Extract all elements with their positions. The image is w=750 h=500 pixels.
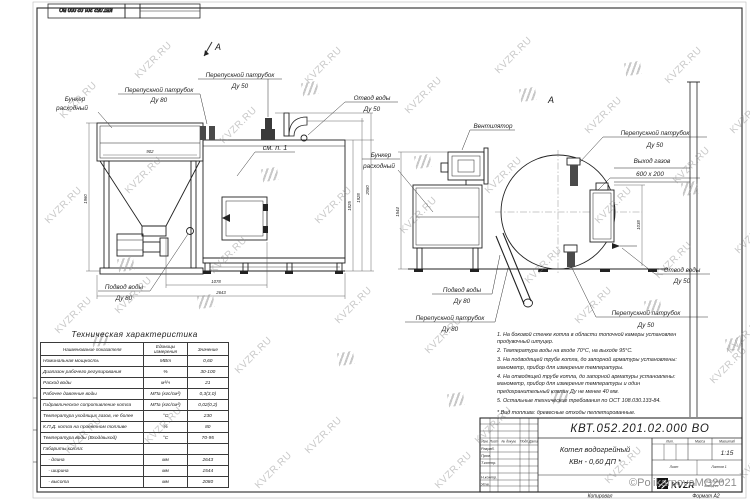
col-header-dokum: № докум. (502, 440, 517, 444)
spec-cell (187, 444, 228, 455)
row-label-tkontr: Т.контр. (481, 461, 496, 465)
note-item: 1. На боковой стенке котла в области топ… (497, 332, 690, 347)
watermark-hatch (301, 81, 319, 97)
product-name-line1: Котел водогрейный (560, 445, 630, 454)
spec-header-name: Наименование показателя (41, 343, 144, 356)
row-label-nkontr: Н.контр. (481, 476, 497, 480)
copyright-watermark: ©PolikarpovaMG2021 (629, 477, 737, 489)
scale-value: 1:15 (721, 450, 734, 457)
side-label-bunker-2: расходный (362, 162, 395, 170)
watermark-hatch (519, 87, 537, 103)
note-item: 2. Температура воды на входе 70°С, на вы… (497, 348, 690, 355)
spec-table-body: Номинальная мощностьМВт0,60Диапазон рабо… (41, 356, 229, 488)
watermark-hatch (414, 154, 432, 170)
spec-cell: 0,02(0,2) (187, 400, 228, 411)
spec-cell: °С (144, 433, 187, 444)
front-section-mark: А (214, 42, 221, 52)
dim-gas-height: 1038 (636, 220, 641, 230)
spec-cell: Гидравлическое сопротивление котла (41, 400, 144, 411)
spec-cell: МВт (144, 356, 187, 367)
spec-cell: мм (144, 466, 187, 477)
dim-hopper-height: 1960 (83, 194, 88, 204)
footer-copied: Копировал (588, 494, 613, 500)
side-label-inlet80-2: Ду 80 (453, 298, 471, 305)
spec-cell: Рабочее давление воды (41, 389, 144, 400)
side-label-fan: Вентилятор (473, 123, 513, 130)
spec-row: Гидравлическое сопротивление котлаМПа (к… (41, 400, 229, 411)
front-view-drawing (97, 113, 345, 274)
spec-cell: 0,3(3,0) (187, 389, 228, 400)
front-label-bypass80-1: Перепускной патрубок (125, 86, 195, 94)
spec-cell: Расход воды (41, 378, 144, 389)
spec-header-value: Значение (187, 343, 228, 356)
footer-format: Формат А2 (692, 494, 720, 500)
dim-h2080: 2080 (365, 185, 370, 196)
side-label-outlet50-2: Ду 50 (673, 278, 691, 285)
front-label-bunker-2: расходный (55, 104, 88, 112)
col-header-list: Лист (489, 440, 499, 444)
watermark-hatch (197, 294, 215, 310)
spec-cell: - высота (41, 477, 144, 488)
mass-label: Масса (695, 440, 705, 444)
spec-row: Температура уходящих газов, не более°С23… (41, 411, 229, 422)
spec-cell: 80 (187, 422, 228, 433)
front-label-inlet80-2: Ду 80 (115, 295, 133, 302)
spec-cell: Габариты котла: (41, 444, 144, 455)
row-label-razrab: Разраб. (481, 447, 495, 451)
watermark-hatch (117, 257, 135, 273)
front-see-note: см. п. 1 (263, 143, 287, 152)
front-label-inlet80-1: Подвод воды (105, 283, 144, 291)
spec-cell (144, 444, 187, 455)
scale-label: Масштаб (719, 440, 735, 444)
spec-table-title: Техническая характеристика (40, 330, 229, 339)
dim-total-length: 2643 (215, 290, 226, 295)
side-label-outlet50-1: Отвод воды (664, 266, 701, 274)
spec-row: Габариты котла: (41, 444, 229, 455)
side-label-bypass50top-2: Ду 50 (646, 142, 664, 149)
side-label-inlet80-1: Подвод воды (443, 286, 482, 294)
dim-h1928: 1928 (356, 193, 361, 203)
side-label-bypass50top-1: Перепускной патрубок (621, 129, 691, 137)
spec-cell: МПа (кгс/см²) (144, 400, 187, 411)
spec-cell: - ширина (41, 466, 144, 477)
spec-row: Диапазон рабочего регулирования%30-100 (41, 367, 229, 378)
front-label-outlet50-2: Ду 50 (363, 106, 381, 113)
watermark-hatch (624, 61, 642, 77)
note-item: 4. На отводящей трубе котла, до запорной… (497, 374, 690, 396)
spec-row: - высотамм2080 (41, 477, 229, 488)
col-header-izm: Изм. (481, 440, 488, 444)
spec-table-section: Техническая характеристика Наименование … (40, 330, 229, 488)
technical-notes: 1. На боковой стенке котла в области топ… (497, 332, 690, 419)
spec-cell: мм (144, 455, 187, 466)
side-view-mark: А (547, 95, 554, 105)
spec-cell: % (144, 367, 187, 378)
spec-cell: 2643 (187, 455, 228, 466)
spec-cell: МПа (кгс/см²) (144, 389, 187, 400)
dim-hopper-width: 902 (146, 149, 154, 154)
sheets-label: Листов 1 (710, 465, 726, 469)
spec-cell: Температура воды (Вход/выход) (41, 433, 144, 444)
spec-row: Рабочее давление водыМПа (кгс/см²)0,3(3,… (41, 389, 229, 400)
note-item: 3. На подводящей трубе котла, до запорно… (497, 357, 690, 372)
spec-cell: Диапазон рабочего регулирования (41, 367, 144, 378)
side-label-bypass80-1: Перепускной патрубок (416, 314, 486, 322)
side-label-gas-2: 600 х 200 (636, 171, 664, 178)
spec-cell: м³/ч (144, 378, 187, 389)
drawing-sheet: КВТ.052.201.02.000 ВО (0, 0, 750, 500)
watermark-hatch (681, 181, 699, 197)
watermark-hatch (447, 392, 465, 408)
spec-cell: 230 (187, 411, 228, 422)
front-label-bypass50-2: Ду 50 (231, 83, 249, 90)
spec-header-units: Единицы измерения (144, 343, 187, 356)
spec-header-row: Наименование показателя Единицы измерени… (41, 343, 229, 356)
lit-label: Лит. (665, 440, 674, 444)
watermark-hatch (725, 337, 743, 353)
spec-cell: % (144, 422, 187, 433)
watermark-hatch (337, 351, 355, 367)
spec-cell: 1544 (187, 466, 228, 477)
front-label-bypass80-2: Ду 80 (150, 97, 168, 104)
front-label-bunker-1: Бункер (65, 96, 86, 103)
row-label-utv: Утв. (481, 483, 490, 487)
front-label-outlet50-1: Отвод воды (354, 94, 391, 102)
watermark-hatch (644, 299, 662, 315)
front-label-bypass50-1: Перепускной патрубок (206, 71, 276, 79)
spec-row: Температура воды (Вход/выход)°С70-95 (41, 433, 229, 444)
spec-cell: 30-100 (187, 367, 228, 378)
spec-cell: °С (144, 411, 187, 422)
top-stamp-number: КВТ.052.201.02.000 ВО (59, 6, 112, 12)
side-label-bypass80-2: Ду 80 (441, 326, 459, 333)
product-name-line2: КВн - 0,60 ДП * (569, 457, 622, 466)
spec-cell: Температура уходящих газов, не более (41, 411, 144, 422)
dim-h1825: 1825 (347, 201, 352, 211)
col-header-data: Дата (528, 440, 538, 444)
front-view-dim-texts: 902 1960 1078 2643 1825 1928 2080 (83, 149, 370, 295)
doc-number: КВТ.052.201.02.000 ВО (570, 423, 709, 435)
dim-body-width: 1078 (211, 279, 221, 284)
spec-table: Наименование показателя Единицы измерени… (40, 342, 229, 488)
side-label-bypass50bot-2: Ду 50 (637, 322, 655, 329)
spec-row: Номинальная мощностьМВт0,60 (41, 356, 229, 367)
dim-side-width: 1544 (395, 207, 400, 217)
spec-cell: К.П.Д. котла на проектном топливе (41, 422, 144, 433)
spec-cell: 70-95 (187, 433, 228, 444)
spec-row: Расход водым³/ч21 (41, 378, 229, 389)
fuel-note: * Вид топлива: древесные отходы пеллетир… (497, 410, 690, 417)
sheet-label: Лист (669, 465, 679, 469)
col-header-podp: Подп. (520, 440, 529, 444)
watermark-hatch (261, 167, 279, 183)
spec-cell: Номинальная мощность (41, 356, 144, 367)
spec-cell: 21 (187, 378, 228, 389)
spec-row: - длинамм2643 (41, 455, 229, 466)
notes-list: 1. На боковой стенке котла в области топ… (497, 332, 690, 405)
side-label-gas-1: Выход газов (634, 157, 671, 165)
side-label-bunker-1: Бункер (371, 152, 392, 159)
spec-cell: - длина (41, 455, 144, 466)
spec-row: К.П.Д. котла на проектном топливе%80 (41, 422, 229, 433)
spec-row: - ширинамм1544 (41, 466, 229, 477)
spec-cell: 2080 (187, 477, 228, 488)
spec-cell: 0,60 (187, 356, 228, 367)
row-label-prov: Пров. (481, 454, 491, 458)
top-stamp: КВТ.052.201.02.000 ВО (48, 4, 200, 18)
spec-cell: мм (144, 477, 187, 488)
note-item: 5. Остальные технические требования по О… (497, 398, 690, 405)
